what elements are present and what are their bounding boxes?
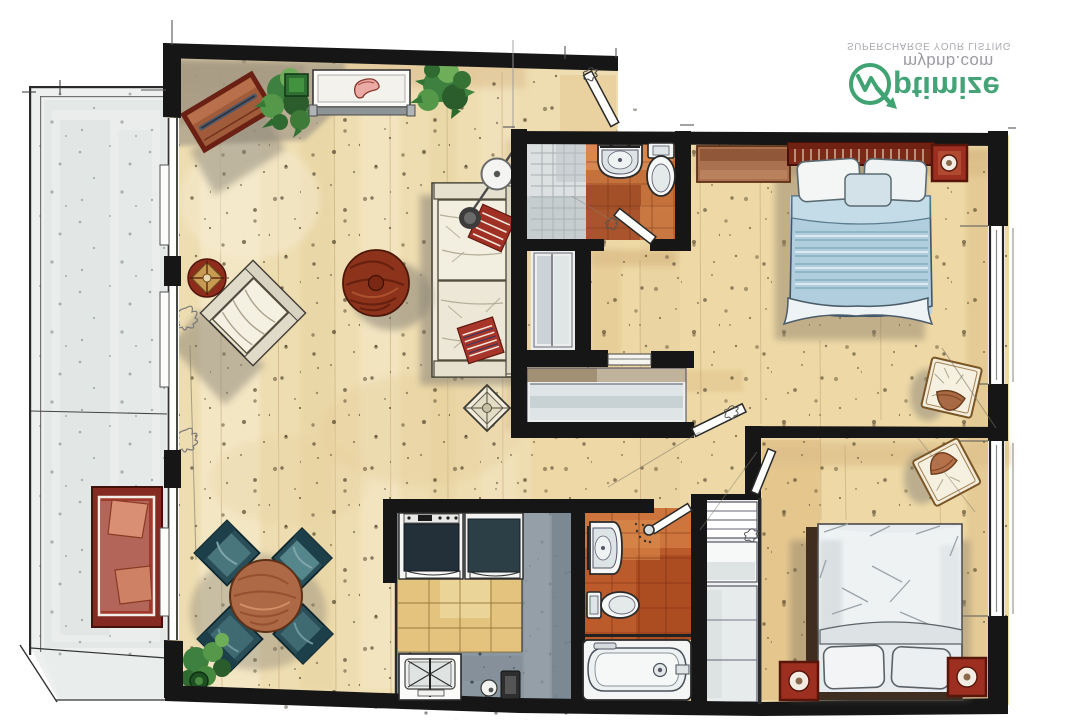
svg-text:mybnb.com: mybnb.com xyxy=(903,52,994,71)
svg-text:ptimize: ptimize xyxy=(893,70,1000,105)
svg-text:SUPERCHARGE YOUR LISTING: SUPERCHARGE YOUR LISTING xyxy=(847,40,1011,51)
